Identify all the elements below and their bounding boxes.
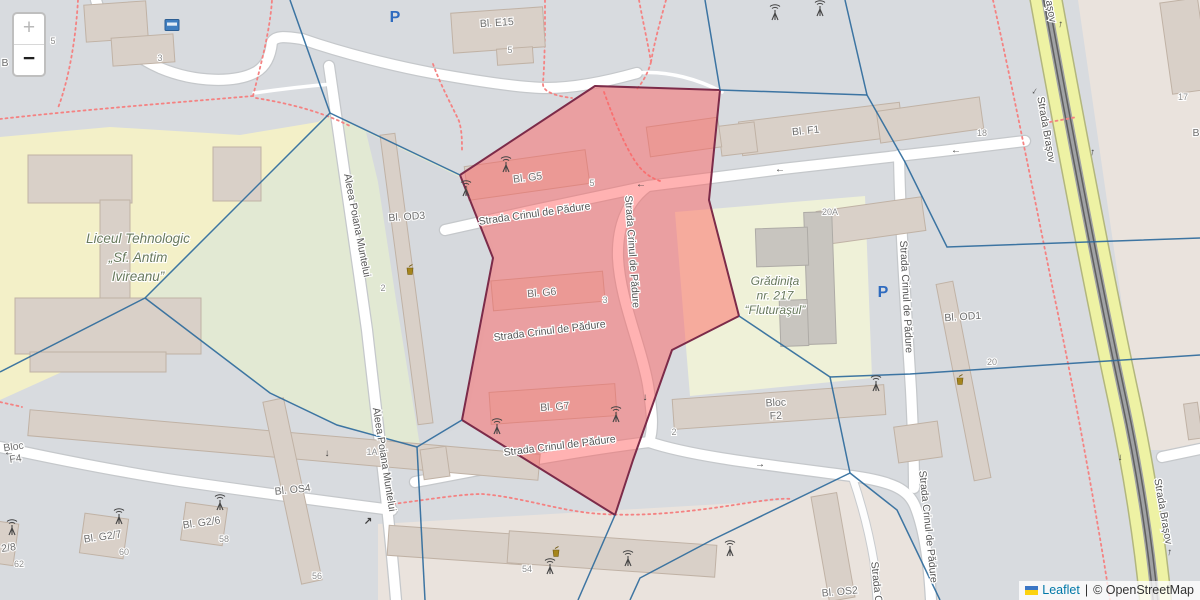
housenumber-label: 20A [822, 207, 838, 217]
parking-icon: P [878, 284, 889, 301]
map-tiles[interactable]: PP Strada Crinul de PădureStrada Crinul … [0, 0, 1200, 600]
building-label: F2 [769, 410, 782, 423]
housenumber-label: 60 [119, 547, 129, 557]
kindergarten-label-line: nr. 217 [757, 289, 795, 303]
leaflet-link[interactable]: Leaflet [1042, 583, 1080, 597]
zoom-control: + − [12, 12, 46, 77]
school-label-line: Ivireanu” [112, 269, 165, 284]
oneway-arrow-icon: ↑ [1089, 147, 1096, 159]
oneway-arrow-icon: ← [951, 145, 961, 156]
map-canvas[interactable]: PP Strada Crinul de PădureStrada Crinul … [0, 0, 1200, 600]
kindergarten-label-line: “Fluturaşul” [745, 303, 807, 317]
zoom-out-button[interactable]: − [14, 44, 44, 75]
housenumber-label: 17 [1178, 92, 1188, 102]
parking-icon: P [390, 9, 401, 26]
housenumber-label: 2 [380, 283, 385, 293]
kindergarten-label-line: Grădinița [751, 274, 800, 288]
housenumber-label: 5 [50, 36, 55, 46]
housenumber-label: 1A [366, 447, 377, 457]
oneway-arrow-icon: ↓ [643, 392, 648, 403]
housenumber-label: 5 [589, 178, 594, 188]
building-label: 2/8 [1, 541, 17, 555]
attribution-bar: Leaflet | © OpenStreetMap [1019, 581, 1200, 600]
antenna-icon [815, 1, 825, 16]
svg-text:P: P [390, 9, 401, 26]
building-label: B [1, 57, 8, 69]
housenumber-label: 54 [522, 564, 532, 574]
school-icon [165, 20, 179, 31]
oneway-arrow-icon: ↓ [325, 448, 330, 459]
oneway-arrow-icon: ← [775, 164, 785, 175]
osm-credit-link[interactable]: © OpenStreetMap [1093, 583, 1194, 597]
building-label: Bl. G7 [540, 400, 570, 414]
oneway-arrow-icon: ↑ [1166, 547, 1173, 559]
housenumber-label: 3 [157, 53, 162, 63]
oneway-arrow-icon: ← [4, 447, 14, 458]
building-label: B [1192, 127, 1199, 139]
housenumber-label: 2 [671, 427, 676, 437]
housenumber-label: 5 [507, 45, 512, 55]
oneway-arrow-icon: ← [1027, 83, 1042, 98]
zoom-in-button[interactable]: + [14, 14, 44, 44]
building-label: Bl. G6 [527, 286, 557, 301]
school-label-line: „Sf. Antim [108, 250, 168, 265]
attribution-separator: | [1085, 583, 1088, 597]
svg-text:P: P [878, 284, 889, 301]
housenumber-label: 20 [987, 357, 997, 367]
ukraine-flag-icon [1025, 586, 1038, 595]
oneway-arrow-icon: → [755, 459, 765, 470]
building-label: Bl. OD3 [388, 210, 426, 225]
building-label: Bl. E15 [479, 16, 514, 30]
school-label-line: Liceul Tehnologic [86, 231, 190, 246]
housenumber-label: 58 [219, 534, 229, 544]
building-label: Bloc [765, 396, 786, 409]
housenumber-label: 18 [977, 128, 987, 138]
antenna-icon [770, 5, 780, 20]
housenumber-label: 62 [14, 559, 24, 569]
oneway-arrow-icon: ← [636, 179, 646, 190]
oneway-arrow-icon: ↗ [364, 516, 372, 527]
housenumber-label: 3 [602, 295, 607, 305]
building-label: Bl. OD1 [944, 310, 982, 325]
housenumber-label: 56 [312, 571, 322, 581]
